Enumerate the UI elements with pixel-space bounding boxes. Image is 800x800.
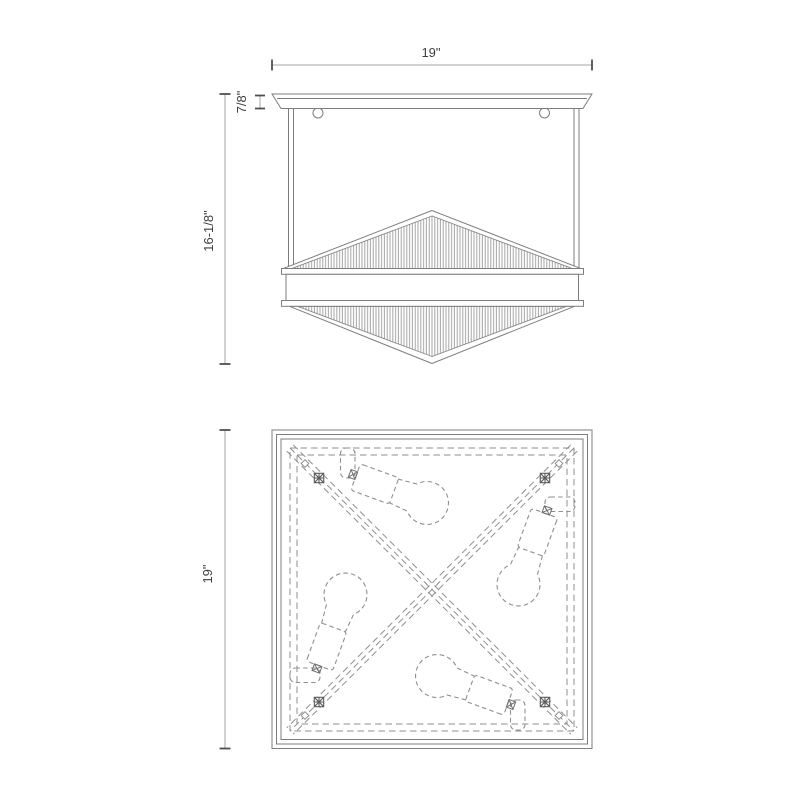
dim-label-canopy-height: 7/8" xyxy=(234,90,249,113)
dim-overall-height: 16-1/8" xyxy=(201,94,231,364)
shade-lower-glass xyxy=(290,306,575,363)
mounting-screw-left xyxy=(313,108,323,118)
hanger-rod-left xyxy=(289,109,294,269)
dim-label-overall-height: 16-1/8" xyxy=(201,210,216,252)
mounting-screw-right xyxy=(540,108,550,118)
dim-width-bottom: 19" xyxy=(200,430,231,749)
dim-canopy-height: 7/8" xyxy=(234,90,265,113)
dim-label-width-bottom: 19" xyxy=(200,564,215,583)
front-view: 19" 16-1/8" 7/8" xyxy=(201,45,592,364)
canopy xyxy=(272,94,592,109)
mounting-bracket-top-right xyxy=(540,473,549,482)
mounting-bracket-top-left xyxy=(314,473,323,482)
shade-center-band xyxy=(282,269,584,307)
dim-label-width-top: 19" xyxy=(421,45,440,60)
hanger-rod-right xyxy=(574,109,579,269)
mounting-bracket-bottom-left xyxy=(314,697,323,706)
dim-width-top: 19" xyxy=(272,45,592,71)
drawing-canvas: 19" 16-1/8" 7/8" xyxy=(0,0,800,800)
fixture-dimension-drawing: 19" 16-1/8" 7/8" xyxy=(0,0,800,800)
mounting-bracket-bottom-right xyxy=(540,697,549,706)
shade-upper-glass xyxy=(283,211,582,269)
bottom-view: 19" xyxy=(200,430,592,749)
